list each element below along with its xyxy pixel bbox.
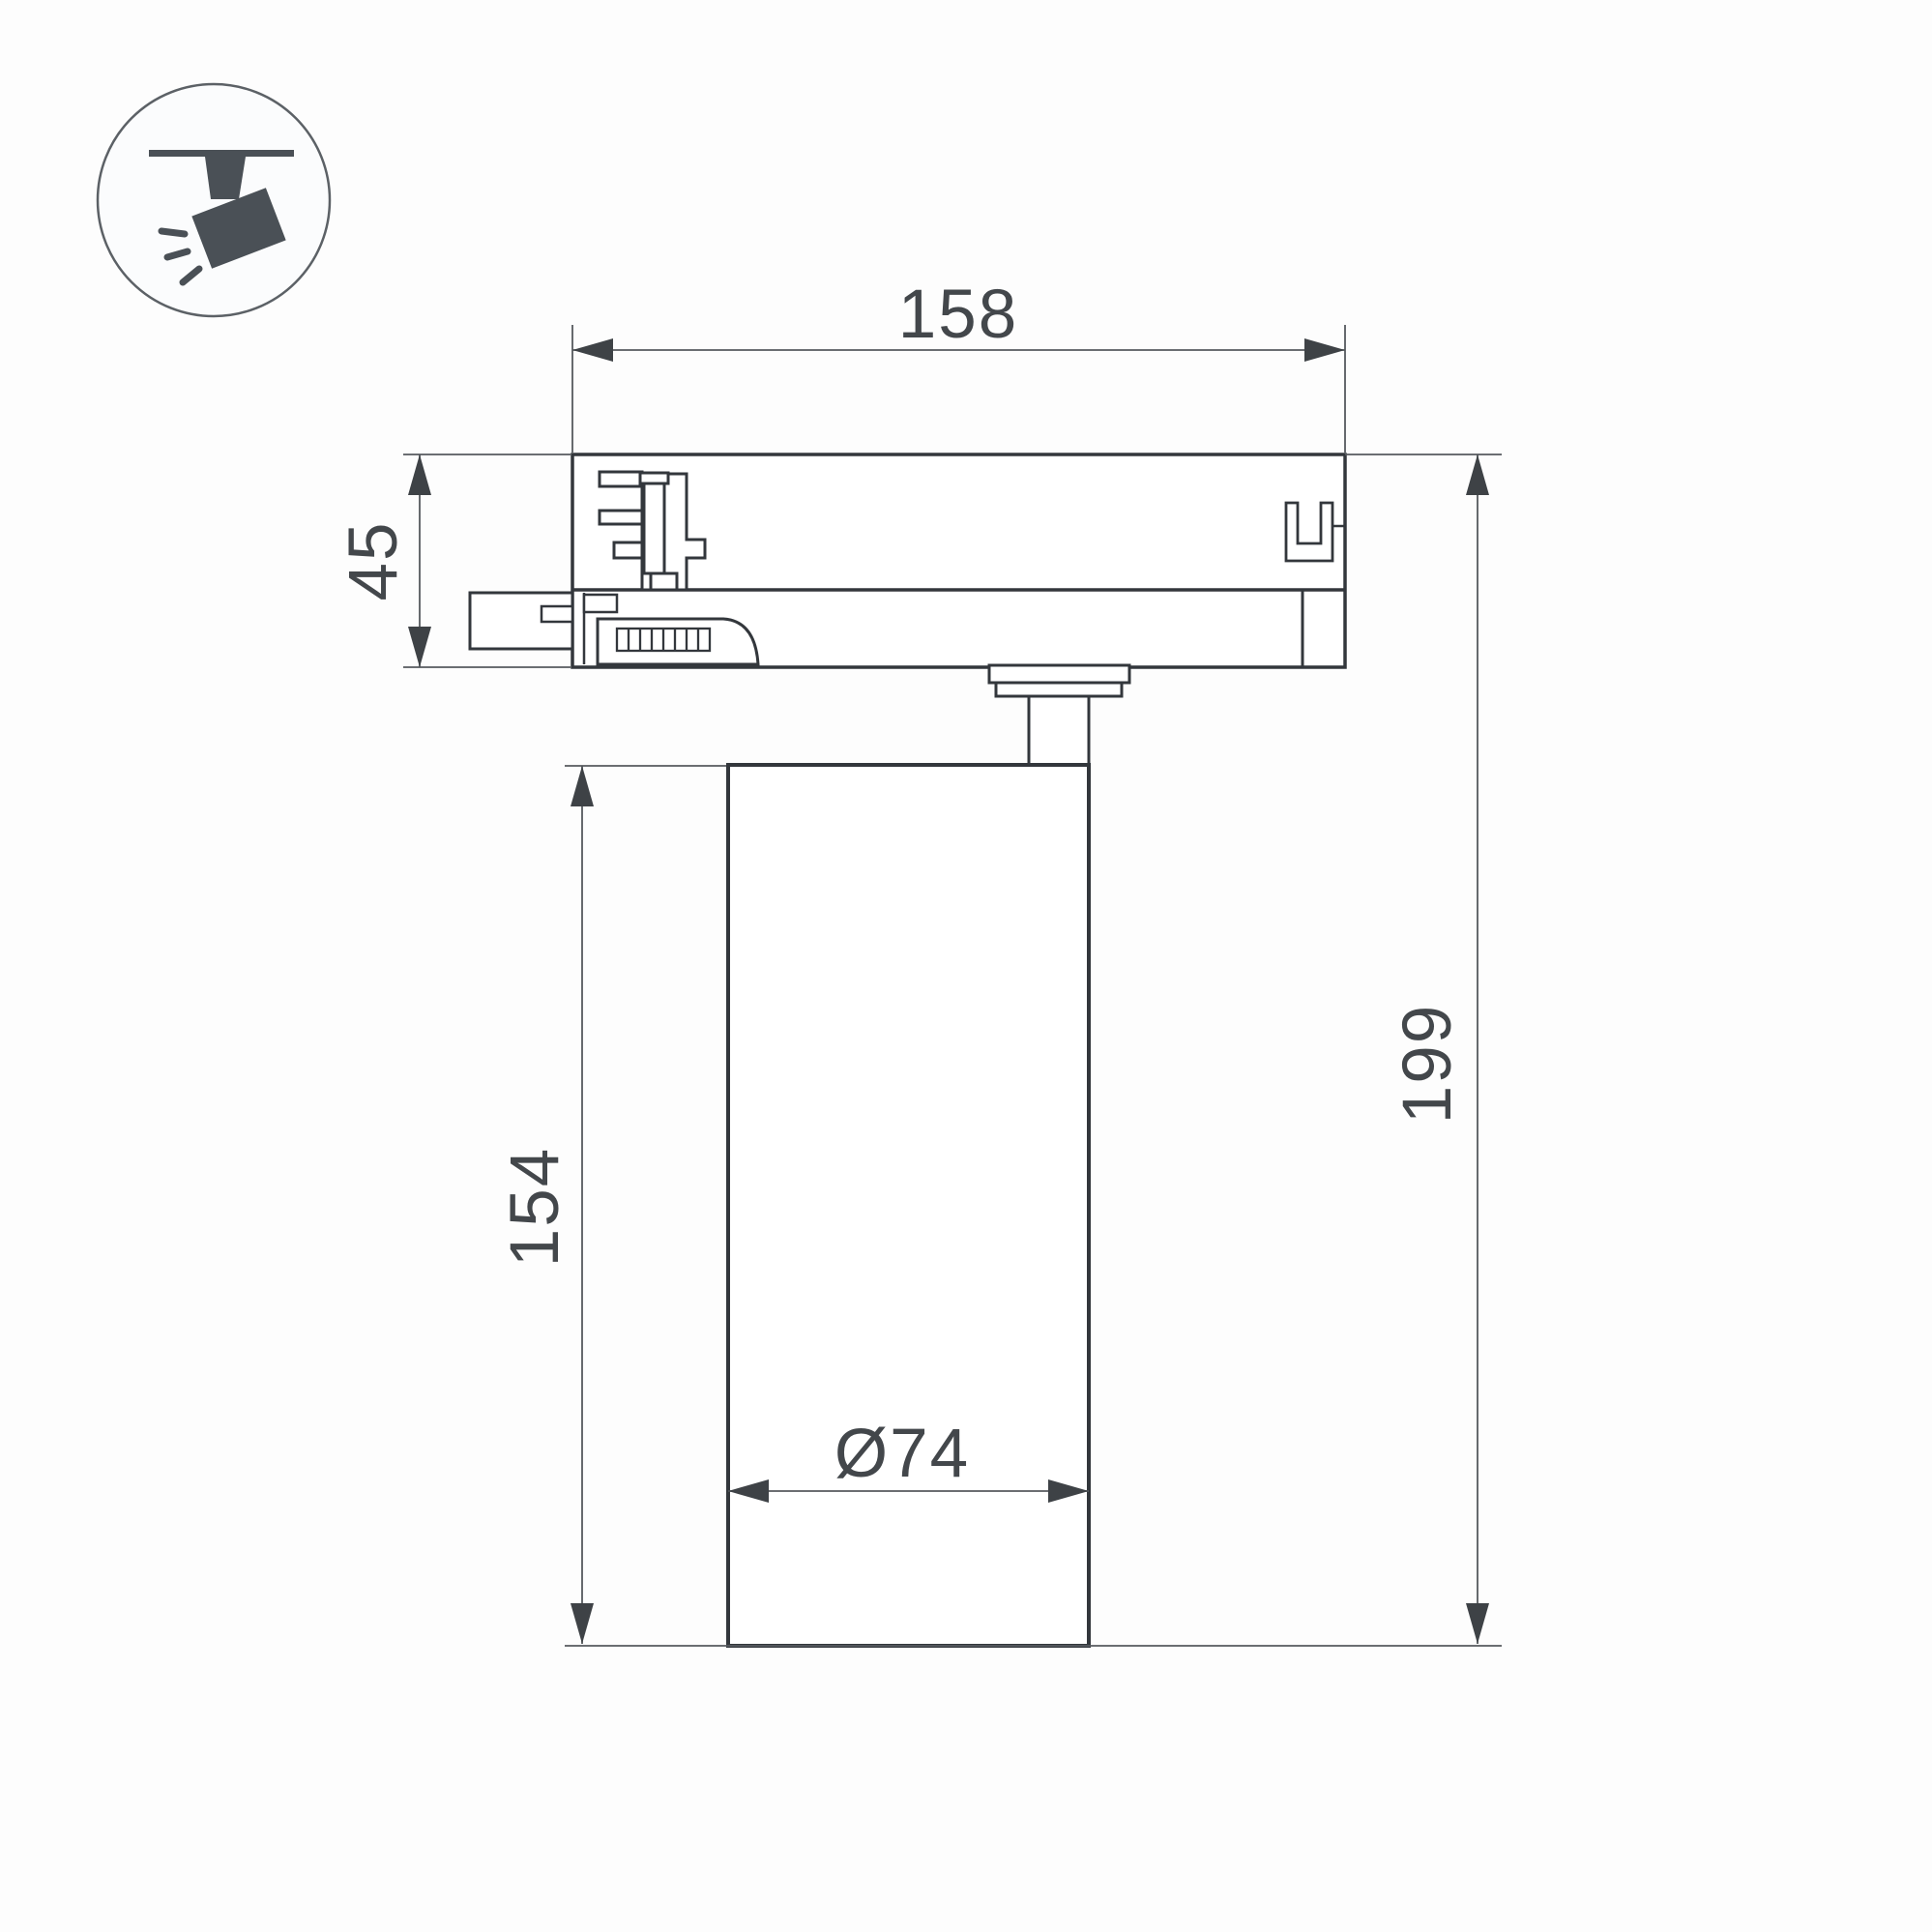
dim-154-arrow-top: [571, 766, 594, 806]
contact-prong-bottom: [614, 542, 642, 558]
latch-button-detail: [542, 606, 572, 622]
latch-notch: [584, 595, 617, 612]
contact-pin-foot: [651, 573, 677, 590]
dim-label-adapter-width: 158: [898, 277, 1018, 353]
swivel-stem: [1029, 696, 1089, 766]
lamp-body-cylinder: [728, 765, 1089, 1646]
dim-199-arrow-top: [1466, 454, 1489, 495]
swivel-flange-upper: [989, 665, 1129, 683]
contact-prong-middle: [600, 511, 642, 524]
drawing-page: 158 45 154 199 Ø74: [0, 0, 1932, 1932]
dim-45-arrow-bottom: [408, 627, 431, 667]
lever-grip: [617, 629, 710, 651]
dim-label-body-height: 154: [497, 1147, 573, 1267]
icon-track-bar: [149, 150, 294, 157]
dim-154-arrow-bottom: [571, 1603, 594, 1644]
track-spotlight-icon: [98, 84, 330, 316]
dim-45-arrow-top: [408, 454, 431, 495]
contact-pin-cap: [640, 473, 668, 483]
icon-circle: [98, 84, 330, 316]
dim-158-arrow-right: [1304, 338, 1345, 362]
dim-199-arrow-bottom: [1466, 1603, 1489, 1644]
dim-154-lines: [565, 766, 726, 1644]
swivel-flange-lower: [996, 683, 1122, 696]
dim-label-adapter-height: 45: [336, 521, 412, 601]
contact-prong-top: [600, 472, 642, 486]
dim-158-arrow-left: [572, 338, 613, 362]
icon-stem: [205, 157, 246, 199]
track-light-dimension-drawing: 158 45 154 199 Ø74: [0, 0, 1932, 1932]
dim-label-body-diameter: Ø74: [834, 1416, 970, 1492]
contact-pin: [644, 483, 664, 573]
dim-label-total-height: 199: [1390, 1004, 1466, 1124]
